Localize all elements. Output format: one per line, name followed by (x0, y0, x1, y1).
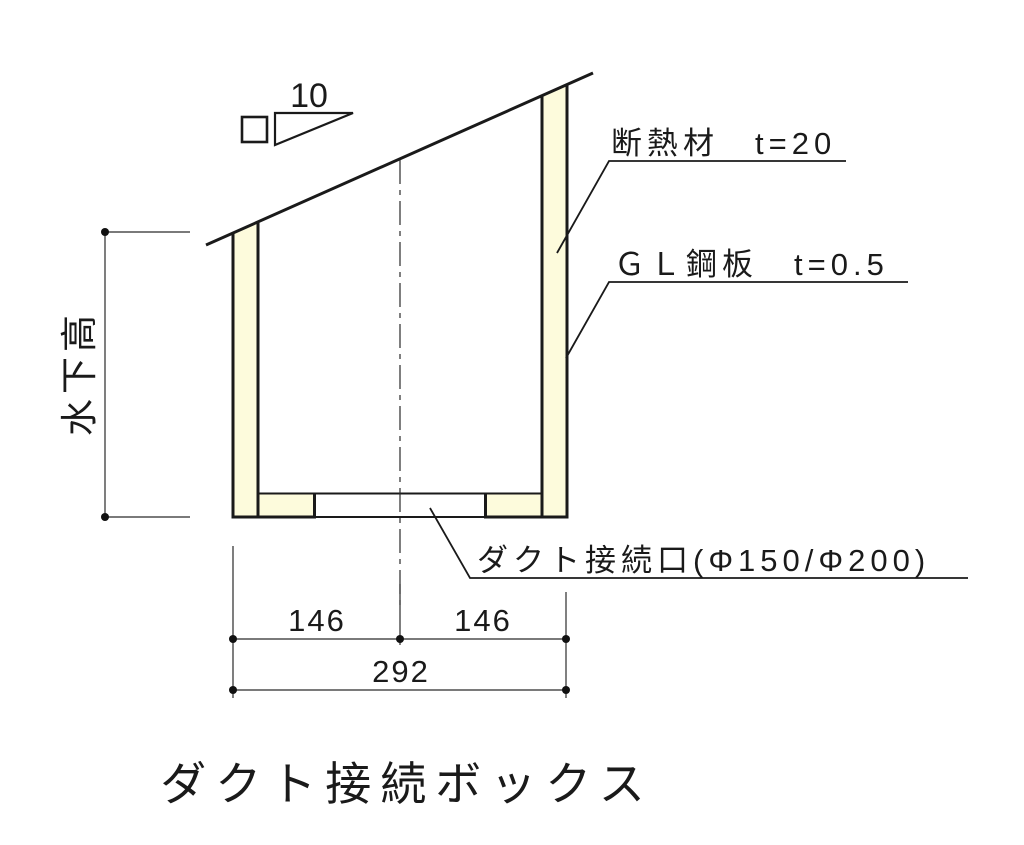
slope-triangle-icon (275, 113, 353, 145)
slope-square-icon (242, 117, 267, 142)
dimension-dot (101, 513, 109, 521)
dimension-dot (562, 635, 570, 643)
dimension-dot (229, 686, 237, 694)
dimension-value-left-half: 146 (288, 603, 346, 638)
slope-value: 10 (290, 77, 328, 115)
steel-plate-label: ＧＬ鋼板 t=0.5 (614, 247, 889, 282)
left-wall-insulation (233, 222, 258, 517)
dimension-dot (101, 228, 109, 236)
right-wall-insulation (542, 85, 567, 517)
dimension-dot (229, 635, 237, 643)
dimension-value-right-half: 146 (454, 603, 512, 638)
drawing-title: ダクト接続ボックス (160, 758, 654, 810)
duct-port-label: ダクト接続口(Φ150/Φ200) (477, 543, 930, 578)
drawing-canvas: 10 断熱材 t=20 ＧＬ鋼板 t=0.5 ダクト接続口(Φ150/Φ200)… (0, 0, 1024, 845)
height-dimension-label: 水下高 (59, 310, 100, 436)
dimension-dot (562, 686, 570, 694)
dimension-value-total: 292 (372, 654, 430, 689)
dimension-dot (396, 635, 404, 643)
duct-box-drawing: 10 断熱材 t=20 ＧＬ鋼板 t=0.5 ダクト接続口(Φ150/Φ200)… (0, 0, 1024, 845)
slope-symbol: 10 (242, 77, 353, 145)
bottom-panel-left-insulation (258, 494, 315, 518)
steel-plate-leader-line (566, 282, 908, 358)
insulation-label: 断熱材 t=20 (611, 126, 836, 161)
insulation-leader-line (557, 161, 846, 253)
bottom-panel-right-insulation (486, 494, 543, 518)
height-dimension: 水下高 (59, 228, 190, 521)
